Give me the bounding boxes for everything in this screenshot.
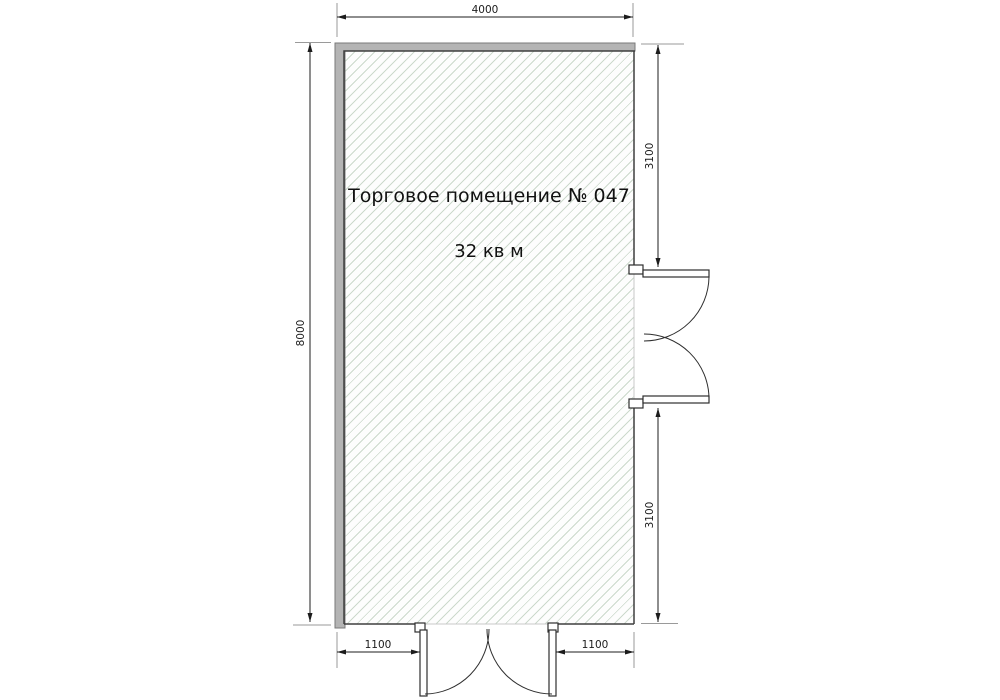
arrow-right-icon [625, 650, 634, 655]
arrow-left-icon [337, 650, 346, 655]
bottom-door-left-leaf [420, 630, 427, 696]
right-door-top-swing-arc [644, 277, 709, 341]
dimension-label-left: 8000 [295, 320, 307, 347]
dimension-left-height: 8000 [293, 43, 331, 626]
dimension-bottom-right: 1100 [556, 632, 634, 668]
dimension-top-width: 4000 [337, 3, 633, 37]
inner-wall-edges [344, 51, 635, 624]
wall-edge-left-top [344, 51, 635, 624]
arrow-up-icon [656, 408, 661, 417]
bottom-door-left-swing-arc [425, 629, 489, 694]
right-door-top-jamb [629, 265, 643, 274]
right-door-bottom-leaf [643, 396, 709, 403]
arrow-left-icon [337, 15, 346, 20]
arrow-up-icon [308, 43, 313, 52]
bottom-door-right-swing-arc [487, 629, 552, 694]
thick-wall-top-left [335, 43, 635, 628]
arrow-up-icon [656, 45, 661, 54]
arrow-down-icon [656, 258, 661, 267]
dimension-right-lower: 3100 [641, 408, 678, 624]
dimension-label-right-lower: 3100 [644, 502, 656, 529]
arrow-down-icon [308, 613, 313, 622]
dimension-bottom-left: 1100 [337, 632, 420, 668]
right-door-bottom-jamb [629, 399, 643, 408]
dimension-label-right-upper: 3100 [644, 143, 656, 170]
room-area-label: 32 кв м [454, 241, 523, 262]
dimension-label-bottom-left: 1100 [365, 639, 392, 651]
right-double-door [629, 265, 709, 408]
room-name-label: Торговое помещение № 047 [347, 185, 630, 207]
right-door-top-leaf [643, 270, 709, 277]
arrow-right-icon [411, 650, 420, 655]
arrow-right-icon [624, 15, 633, 20]
dimension-right-upper: 3100 [641, 44, 684, 267]
bottom-double-door [415, 623, 558, 696]
arrow-left-icon [556, 650, 565, 655]
door-opening-thresholds [420, 272, 634, 624]
dimension-label-bottom-right: 1100 [582, 639, 609, 651]
right-door-bottom-swing-arc [644, 334, 709, 398]
floor-plan-drawing: 4000 8000 3100 3100 [0, 0, 1000, 700]
dimension-label-top: 4000 [472, 4, 499, 16]
bottom-door-right-leaf [549, 630, 556, 696]
arrow-down-icon [656, 613, 661, 622]
floor-plan-canvas: 4000 8000 3100 3100 [0, 0, 1000, 700]
